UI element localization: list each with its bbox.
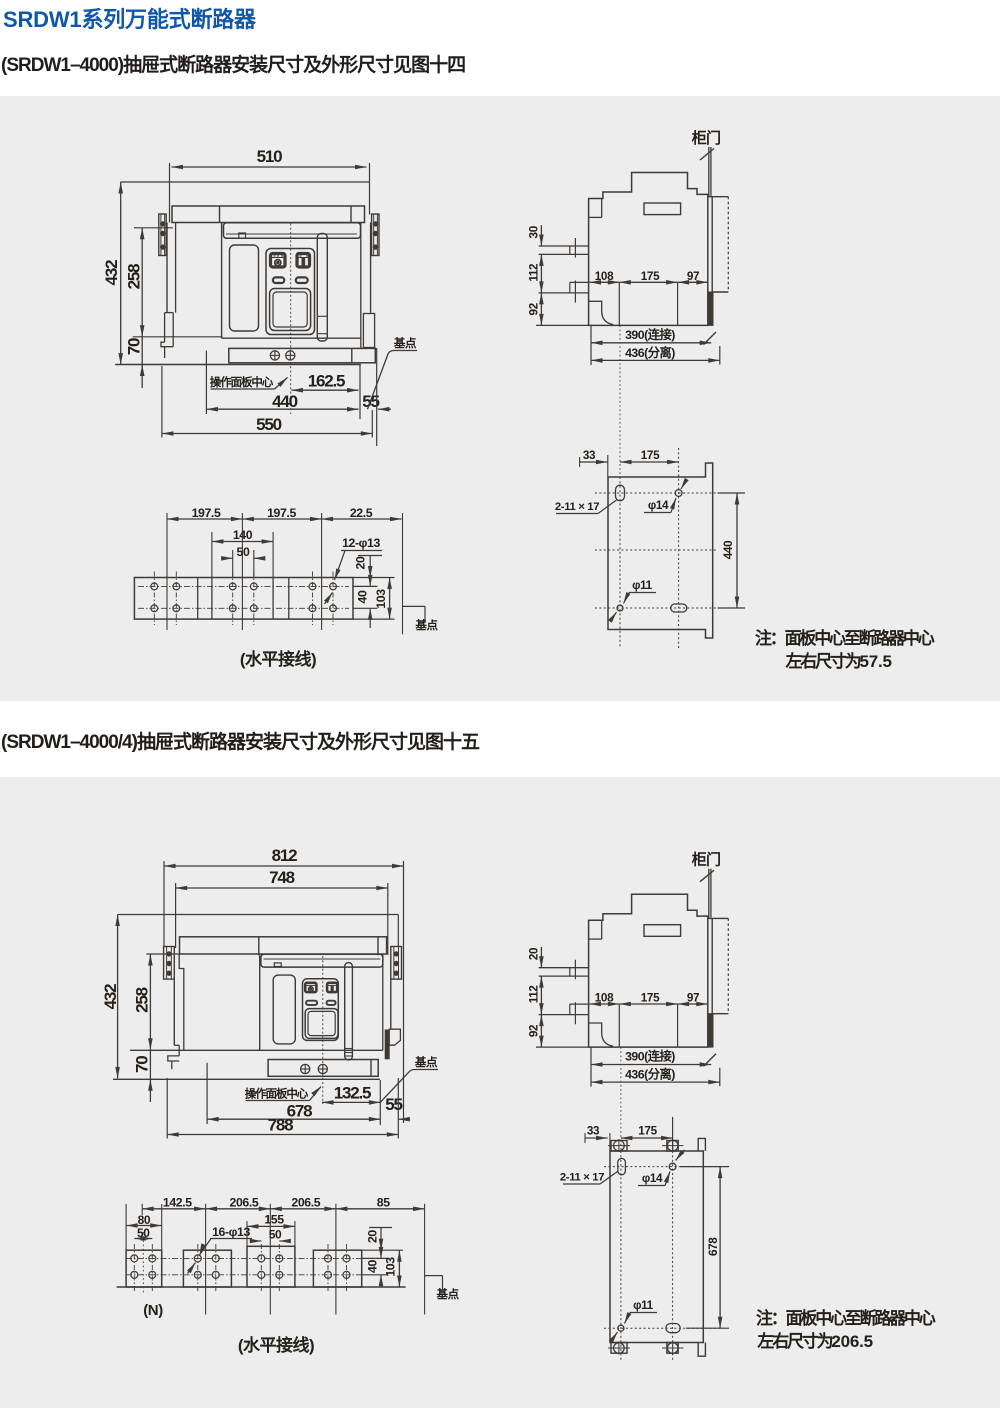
svg-text:33: 33 — [587, 1125, 600, 1138]
svg-text:162.5: 162.5 — [308, 372, 345, 391]
svg-text:748: 748 — [269, 868, 295, 887]
svg-text:(水平接线): (水平接线) — [240, 649, 316, 669]
svg-text:432: 432 — [102, 260, 121, 286]
svg-text:788: 788 — [268, 1116, 294, 1135]
svg-text:左右尺寸为206.5: 左右尺寸为206.5 — [757, 1331, 873, 1351]
svg-text:550: 550 — [256, 415, 282, 434]
svg-text:103: 103 — [384, 1257, 398, 1277]
svg-text:440: 440 — [272, 392, 298, 411]
svg-text:258: 258 — [133, 987, 152, 1013]
svg-text:φ11: φ11 — [633, 1299, 654, 1312]
svg-text:440: 440 — [722, 540, 735, 559]
svg-text:基点: 基点 — [435, 1287, 459, 1301]
svg-text:2-11 × 17: 2-11 × 17 — [555, 501, 599, 513]
svg-text:操作面板中心: 操作面板中心 — [210, 375, 274, 389]
svg-text:175: 175 — [641, 449, 660, 462]
svg-text:20: 20 — [354, 556, 368, 569]
svg-text:注：面板中心至断路器中心: 注：面板中心至断路器中心 — [755, 628, 935, 648]
svg-text:20: 20 — [528, 947, 541, 960]
svg-text:φ14: φ14 — [648, 499, 669, 512]
svg-text:基点: 基点 — [414, 618, 438, 632]
svg-text:左右尺寸为57.5: 左右尺寸为57.5 — [786, 651, 892, 671]
svg-text:φ11: φ11 — [632, 579, 653, 592]
svg-text:103: 103 — [374, 589, 388, 609]
svg-text:50: 50 — [237, 545, 250, 559]
svg-text:22.5: 22.5 — [350, 506, 373, 520]
svg-text:40: 40 — [366, 1260, 380, 1273]
svg-text:258: 258 — [125, 264, 144, 290]
svg-text:12-φ13: 12-φ13 — [342, 536, 380, 550]
svg-text:50: 50 — [269, 1228, 282, 1242]
svg-text:注：面板中心至断路器中心: 注：面板中心至断路器中心 — [756, 1308, 936, 1328]
svg-text:(N): (N) — [143, 1302, 163, 1319]
svg-text:(水平接线): (水平接线) — [238, 1335, 314, 1355]
svg-text:206.5: 206.5 — [291, 1195, 320, 1209]
svg-text:70: 70 — [125, 338, 144, 355]
svg-text:678: 678 — [707, 1237, 720, 1256]
svg-text:操作面板中心: 操作面板中心 — [245, 1087, 309, 1101]
svg-text:85: 85 — [377, 1195, 390, 1209]
svg-text:142.5: 142.5 — [163, 1195, 192, 1209]
svg-text:2-11 × 17: 2-11 × 17 — [560, 1172, 604, 1184]
svg-text:20: 20 — [366, 1230, 380, 1243]
svg-text:30: 30 — [528, 225, 541, 238]
svg-text:197.5: 197.5 — [267, 506, 296, 520]
svg-text:基点: 基点 — [393, 336, 417, 350]
svg-text:55: 55 — [385, 1095, 402, 1114]
svg-text:16-φ13: 16-φ13 — [212, 1225, 250, 1239]
svg-text:基点: 基点 — [414, 1055, 438, 1069]
svg-text:140: 140 — [233, 528, 253, 542]
svg-text:33: 33 — [583, 449, 596, 462]
svg-text:70: 70 — [133, 1056, 152, 1073]
svg-text:40: 40 — [356, 590, 370, 603]
svg-text:206.5: 206.5 — [230, 1195, 259, 1209]
svg-text:155: 155 — [264, 1213, 284, 1227]
svg-text:φ14: φ14 — [642, 1172, 663, 1185]
svg-text:197.5: 197.5 — [192, 506, 221, 520]
svg-text:132.5: 132.5 — [334, 1084, 371, 1103]
svg-text:175: 175 — [638, 1125, 657, 1138]
svg-text:812: 812 — [272, 846, 298, 865]
svg-text:510: 510 — [257, 147, 283, 166]
